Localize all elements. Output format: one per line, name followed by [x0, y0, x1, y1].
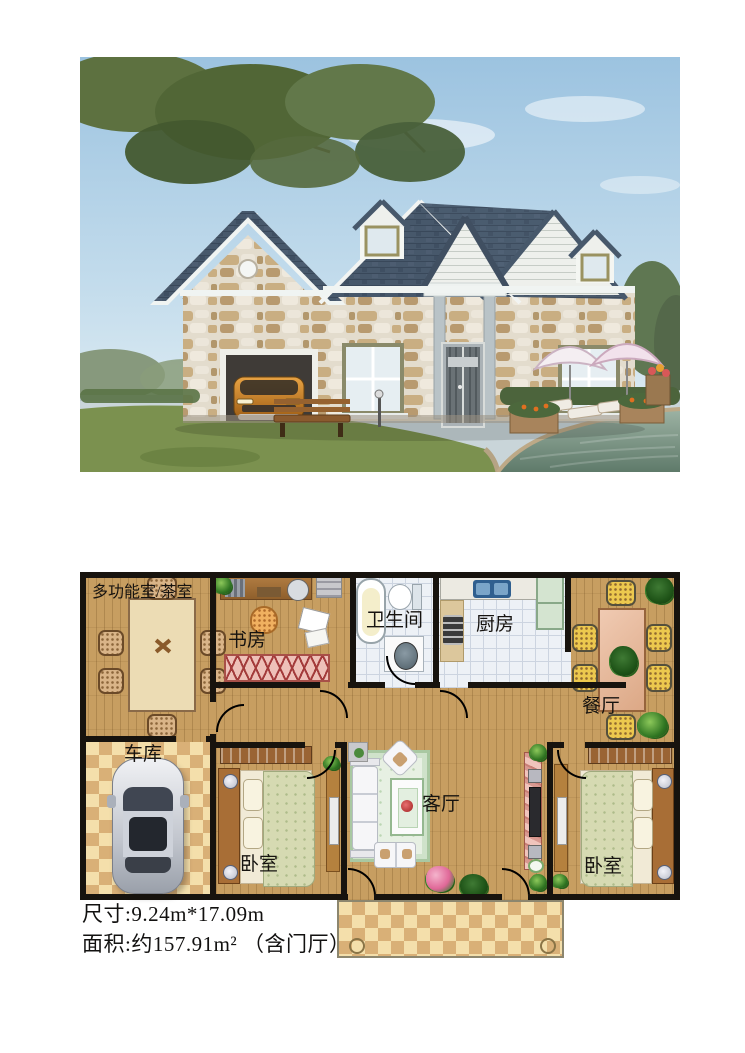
dining-chair [606, 580, 636, 606]
dormer-left-window [366, 227, 398, 255]
wall-outer-right [674, 572, 680, 900]
bedside-board-left [218, 768, 240, 884]
room-label-living: 客厅 [422, 794, 460, 816]
study-bench [224, 654, 330, 682]
room-label-multifunction: 多功能室/茶室 [92, 582, 192, 604]
kitchen-counter-l [440, 600, 464, 662]
room-label-bedroom-left: 卧室 [240, 854, 278, 876]
plant-study [214, 576, 232, 594]
television [529, 787, 541, 837]
wall-outer-top [80, 572, 680, 578]
entry-door [442, 343, 484, 427]
wall-bedroom-left-top-1 [216, 742, 305, 748]
wall-bedroom-right-top-2 [585, 742, 674, 748]
car-mirror-right [180, 795, 189, 808]
dimension-caption-line2: 面积:约157.91m² （含门厅） [82, 929, 350, 959]
wall-hall-top-4 [468, 682, 626, 688]
garage-car-topview [112, 758, 184, 894]
house-photo [80, 57, 680, 472]
plant-dining-bottom [638, 712, 668, 738]
bedside-lamp [223, 774, 238, 789]
hedge-row-left [80, 389, 200, 403]
room-label-garage: 车库 [124, 744, 162, 766]
toilet-tank [412, 584, 422, 610]
entry-porch [337, 900, 564, 958]
pillow [243, 779, 263, 811]
plant-hall-top [530, 744, 547, 761]
wall-living-left [341, 742, 347, 900]
tea-chair [147, 714, 177, 738]
bedside-lamp [657, 774, 672, 789]
grass-shade [140, 447, 260, 467]
porch-column-base-right [540, 938, 556, 954]
loveseat [374, 842, 416, 868]
coffee-table [390, 778, 424, 836]
study-shelf [316, 576, 342, 598]
garage-car [234, 377, 304, 420]
toilet [388, 584, 412, 610]
room-label-bedroom-right: 卧室 [584, 856, 622, 878]
desk-monitor [287, 579, 309, 601]
tv [329, 797, 339, 845]
speaker [528, 769, 542, 783]
plant-hall-bottom [530, 874, 547, 891]
wall-outer-bottom-2 [374, 894, 502, 900]
wall-study-bath [350, 578, 356, 688]
car-rear-window [125, 857, 171, 873]
bedside-board-right [652, 768, 674, 884]
wardrobe-left-bedroom [220, 746, 312, 764]
desk-keyboard [257, 587, 281, 597]
wardrobe-right-bedroom [588, 746, 672, 764]
car-headlight-left [237, 399, 253, 404]
car-mirror-left [107, 795, 116, 808]
tea-table [128, 598, 196, 712]
dimension-caption-line1: 尺寸:9.24m*17.09m [82, 899, 265, 929]
room-label-bathroom: 卫生间 [366, 610, 423, 632]
dining-centerpiece [610, 646, 638, 676]
tea-chair [98, 630, 124, 656]
room-label-dining: 餐厅 [582, 696, 620, 718]
wall-living-right [547, 742, 553, 900]
wall-kitchen-dining [565, 578, 571, 652]
wall-bath-kitchen [433, 578, 439, 688]
listing-page: 多功能室/茶室 书房 卫生间 厨房 餐厅 车库 卧室 客厅 卧室 尺寸:9.24… [0, 0, 745, 1053]
kitchen-counter [440, 576, 542, 600]
wall-garage-top-2 [206, 736, 216, 742]
porch-column-right [484, 295, 495, 419]
wall-hall-top-3 [415, 682, 440, 688]
study-desk [220, 576, 312, 600]
sofa-three-seat [352, 766, 378, 850]
car-sunroof [129, 817, 167, 851]
car-windshield [240, 380, 298, 395]
stove [443, 615, 463, 645]
eaves-trim-main [323, 286, 635, 293]
dining-chair [646, 664, 672, 692]
bedside-lamp [223, 865, 238, 880]
room-label-kitchen: 厨房 [476, 614, 514, 636]
tv-console-right-bedroom [554, 764, 568, 872]
stone-base-skirt [183, 415, 635, 423]
wall-hall-top-2 [348, 682, 385, 688]
pillow [243, 817, 263, 849]
eaves-trim-garage [180, 290, 328, 296]
plant-dining-top [646, 576, 674, 604]
foreground-tree-canopy [80, 57, 465, 188]
room-label-study: 书房 [228, 630, 266, 652]
dining-chair [646, 624, 672, 652]
bedside-lamp [657, 865, 672, 880]
door-transom [448, 357, 478, 367]
flowers-living [426, 866, 454, 892]
table-flowers [401, 800, 413, 812]
wall-bedroom-right-top-1 [547, 742, 564, 748]
kitchen-sink [473, 580, 511, 598]
wall-garage-right [210, 734, 216, 900]
wall-garage-top-1 [86, 736, 176, 742]
tv-cabinet-living [524, 752, 542, 870]
dining-chair [572, 624, 598, 652]
refrigerator [536, 576, 564, 630]
speaker [528, 845, 542, 859]
pillow [633, 817, 653, 849]
decor-plate [528, 859, 544, 873]
gable-vent [239, 260, 257, 278]
porch-column-base-left [349, 938, 365, 954]
tea-chair [98, 668, 124, 694]
pillow [633, 779, 653, 811]
plant-console-right [552, 874, 568, 888]
wall-hall-top-1 [216, 682, 320, 688]
dormer-right-window [582, 255, 608, 280]
side-table [348, 742, 368, 762]
tv [557, 797, 567, 845]
tv-console-left-bedroom [326, 764, 340, 872]
car-windshield [123, 787, 173, 813]
door-handle [458, 385, 462, 389]
